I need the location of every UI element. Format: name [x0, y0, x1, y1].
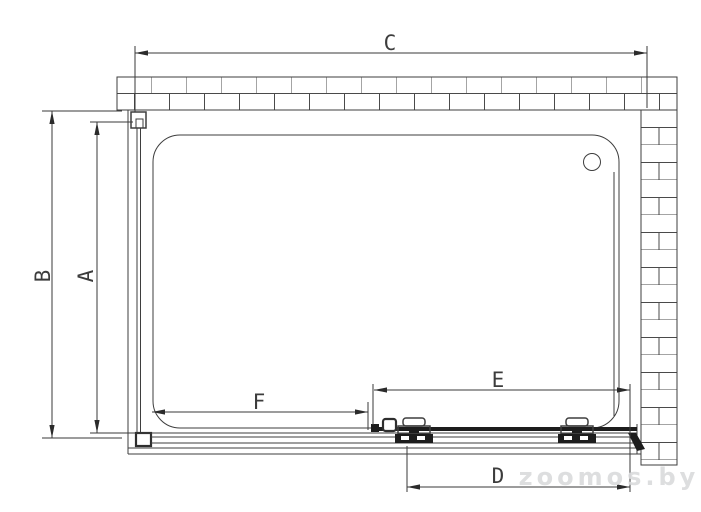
drain-hole: [584, 154, 601, 171]
roller-axle: [409, 427, 419, 433]
door-handle: [383, 419, 396, 431]
roller-wheel-slot-1: [564, 436, 572, 440]
arrowhead: [407, 484, 420, 489]
roller-cap: [566, 418, 588, 426]
shower-tray: [153, 135, 619, 428]
roller-base: [395, 434, 433, 443]
watermark: zoomos.by: [519, 463, 700, 491]
door-left-end-cap: [371, 424, 379, 432]
tray-outline: [153, 135, 619, 428]
arrowhead: [152, 409, 165, 414]
fixed-side-panel: [128, 110, 151, 454]
dimension-f: F: [152, 390, 368, 430]
arrowhead: [49, 425, 54, 438]
wall-profile-top: [131, 112, 146, 128]
right-wall-brick-hatch: [641, 110, 677, 465]
dimension-label-d: D: [492, 464, 505, 488]
sliding-door: [371, 418, 645, 451]
dimension-label-c: C: [384, 31, 397, 55]
roller-wheel-slot-1: [401, 436, 409, 440]
dimension-label-e: E: [492, 368, 505, 392]
roller-wheel-slot-2: [417, 436, 425, 440]
arrowhead: [617, 387, 630, 392]
roller-base: [558, 434, 596, 443]
dimension-label-b: B: [31, 270, 55, 283]
diagram-page: C B A F E D: [0, 0, 701, 512]
arrowhead: [49, 111, 54, 124]
shower-enclosure-plan-drawing: C B A F E D: [0, 0, 701, 512]
top-wall-brick-hatch: [117, 77, 677, 110]
arrowhead: [94, 122, 99, 135]
arrowhead: [355, 409, 368, 414]
arrowhead: [634, 50, 647, 55]
dimension-label-f: F: [253, 390, 266, 414]
dimension-label-a: A: [74, 269, 98, 282]
arrowhead: [135, 50, 148, 55]
arrowhead: [374, 387, 387, 392]
roller-axle: [572, 427, 582, 433]
wall-profile-top-notch: [136, 119, 143, 128]
roller-cap: [403, 418, 425, 426]
arrowhead: [94, 420, 99, 433]
corner-profile-bottom: [136, 433, 151, 446]
roller-wheel-slot-2: [580, 436, 588, 440]
